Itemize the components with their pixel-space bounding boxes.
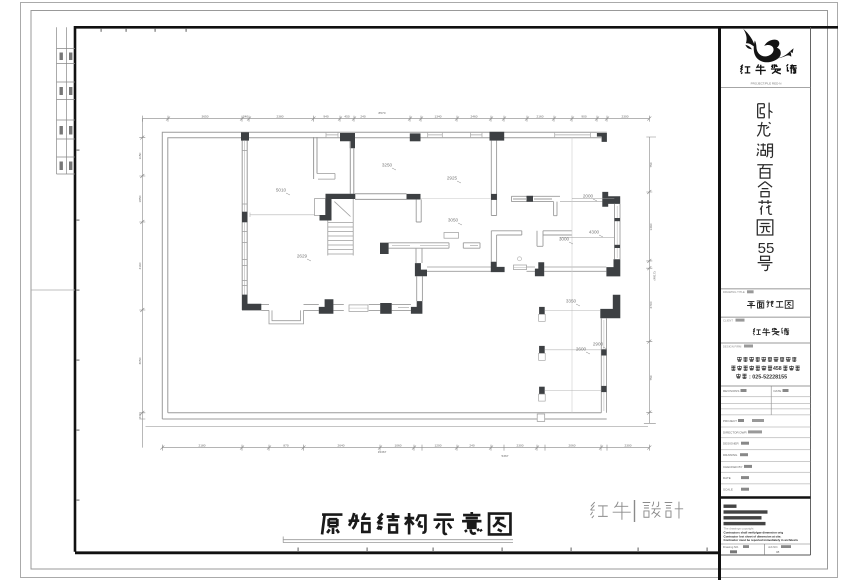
svg-text:940: 940 [323,114,328,118]
svg-text:15367: 15367 [378,450,387,454]
svg-text:240: 240 [243,114,248,118]
svg-text:3050: 3050 [138,357,142,364]
svg-text:CLIENT: CLIENT [723,319,733,323]
svg-text:240: 240 [360,114,365,118]
svg-text:5367: 5367 [502,454,509,458]
svg-text:2300: 2300 [625,443,632,447]
svg-text:2180: 2180 [199,443,206,447]
svg-text:3050: 3050 [448,218,459,223]
svg-text:DRAWING TITLE: DRAWING TITLE [723,290,745,294]
svg-text:2000: 2000 [583,194,594,199]
svg-text:870: 870 [283,443,288,447]
svg-text:1850: 1850 [138,195,142,202]
svg-text:CHECKED BY: CHECKED BY [723,465,743,469]
svg-text:DIRECTOR DWR: DIRECTOR DWR [723,430,747,434]
svg-text:REVISIONS: REVISIONS [723,389,739,393]
svg-text:2700: 2700 [649,301,653,308]
svg-text:750: 750 [649,375,653,380]
svg-text:DATE: DATE [774,389,782,393]
svg-text:240: 240 [469,443,474,447]
svg-text:4300: 4300 [589,230,600,235]
svg-text:1200: 1200 [435,443,442,447]
svg-text:55: 55 [758,240,775,257]
svg-text:SCALE: SCALE [723,488,733,492]
svg-text:2160: 2160 [537,114,544,118]
svg-text:4160: 4160 [138,262,142,269]
svg-text:2380: 2380 [277,114,284,118]
svg-text:PROJECT: PROJECT [723,419,737,423]
svg-text:PROJECT/PLE RED-N: PROJECT/PLE RED-N [751,82,782,86]
svg-text:08: 08 [776,550,780,554]
svg-text:DRAWING: DRAWING [723,453,738,457]
svg-text:240: 240 [138,413,142,418]
svg-text:2300: 2300 [622,114,629,118]
svg-text:5010: 5010 [276,188,287,193]
svg-text:2629: 2629 [297,254,308,259]
svg-text:3250: 3250 [382,163,393,168]
svg-text:1460: 1460 [649,223,653,230]
svg-text:2900: 2900 [593,342,604,347]
svg-text:2460: 2460 [471,114,478,118]
svg-text:1340: 1340 [435,114,442,118]
svg-text:DESIGN FIRM: DESIGN FIRM [723,344,742,348]
svg-text:458: 458 [773,366,782,372]
svg-text:2600: 2600 [576,347,587,352]
svg-text:8570: 8570 [379,111,386,115]
svg-text:2300: 2300 [517,443,524,447]
svg-text:2640: 2640 [338,443,345,447]
svg-text:3000: 3000 [559,237,570,242]
svg-text:3650: 3650 [202,114,209,118]
svg-text:1060: 1060 [395,443,402,447]
svg-text:450: 450 [344,114,349,118]
svg-text:2925: 2925 [447,176,458,181]
svg-text:DESIGNER: DESIGNER [723,442,740,446]
svg-text:2060: 2060 [569,443,576,447]
svg-text:900: 900 [581,114,586,118]
svg-text:Drawing NO.: Drawing NO. [723,545,739,549]
svg-text:Contractor must be reported im: Contractor must be reported immediately … [724,538,799,542]
svg-text:DATE: DATE [723,476,731,480]
svg-text:3350: 3350 [566,299,577,304]
svg-text:1150: 1150 [138,152,142,159]
svg-text:: 025-52228155: : 025-52228155 [749,374,787,380]
svg-text:(4817): (4817) [652,272,656,281]
svg-text:Job NO.: Job NO. [768,545,778,549]
svg-text:750: 750 [649,162,653,167]
